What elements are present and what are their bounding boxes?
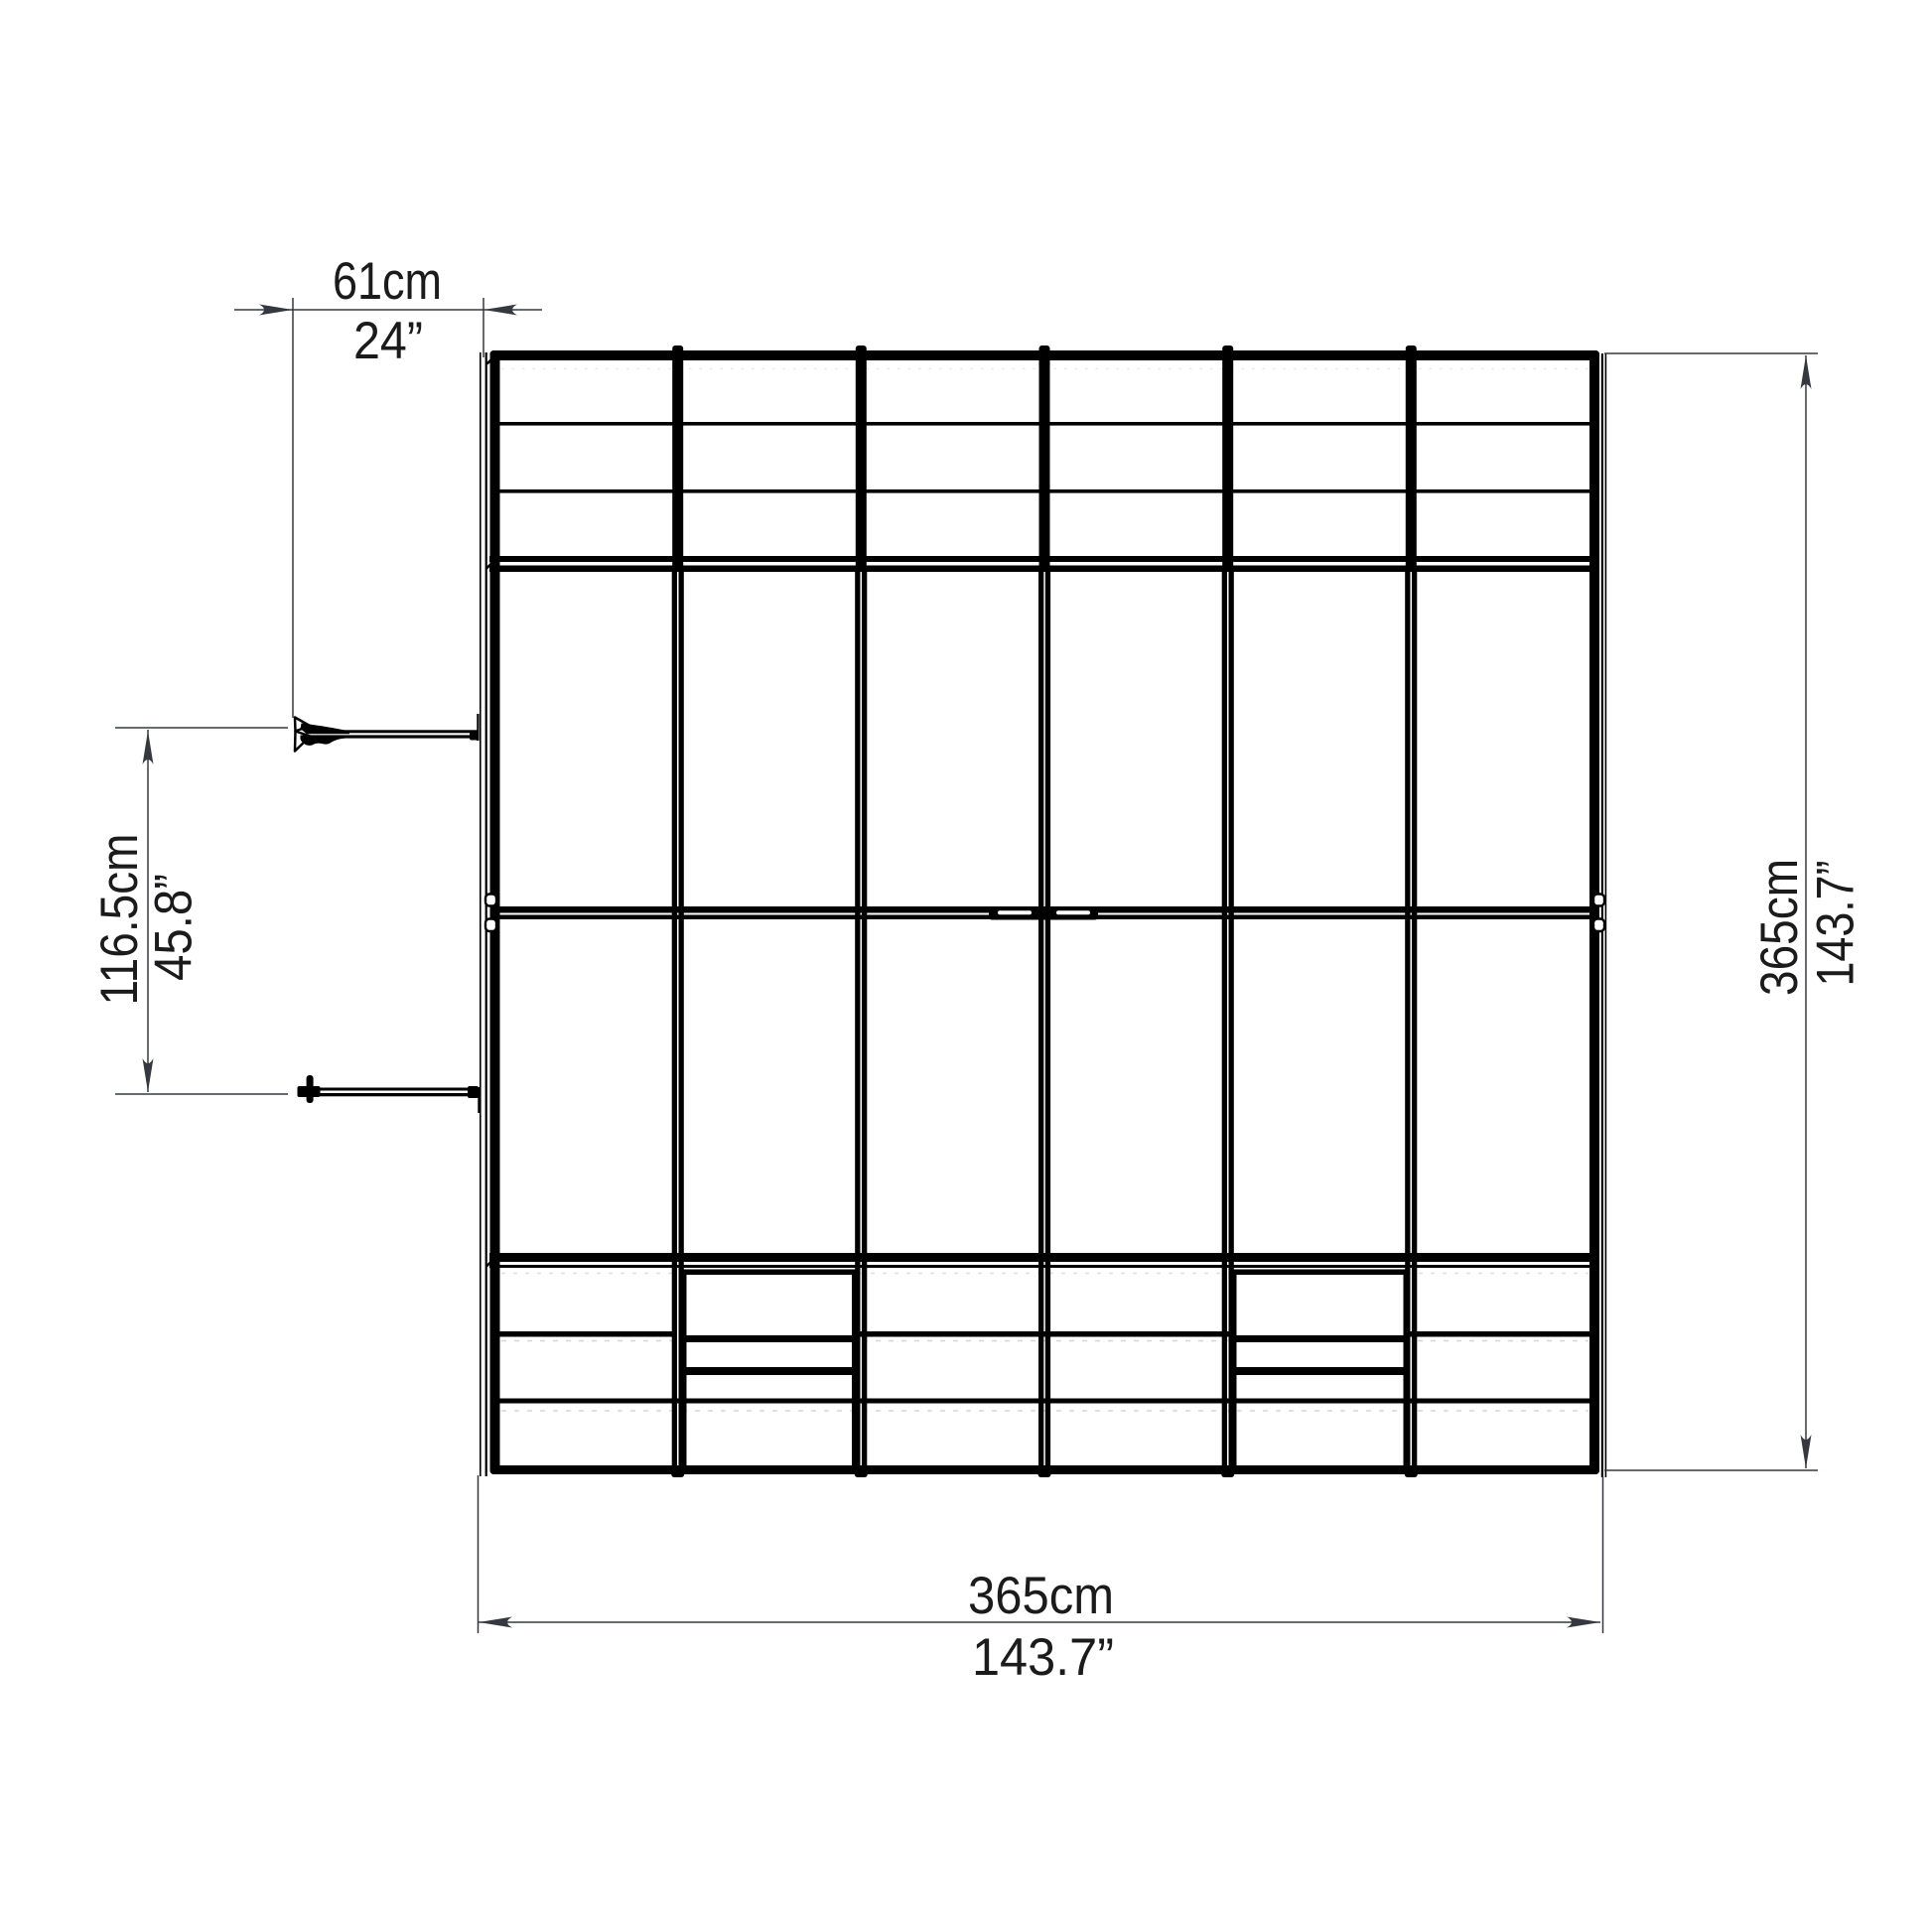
svg-text:143.7”: 143.7” [1807, 861, 1865, 987]
svg-text:45.8”: 45.8” [145, 874, 204, 981]
svg-text:116.5cm: 116.5cm [90, 834, 149, 1006]
svg-text:24”: 24” [353, 312, 423, 370]
svg-text:61cm: 61cm [333, 252, 442, 311]
svg-text:365cm: 365cm [968, 1567, 1114, 1625]
svg-text:365cm: 365cm [1750, 859, 1809, 996]
svg-text:143.7”: 143.7” [972, 1628, 1114, 1687]
